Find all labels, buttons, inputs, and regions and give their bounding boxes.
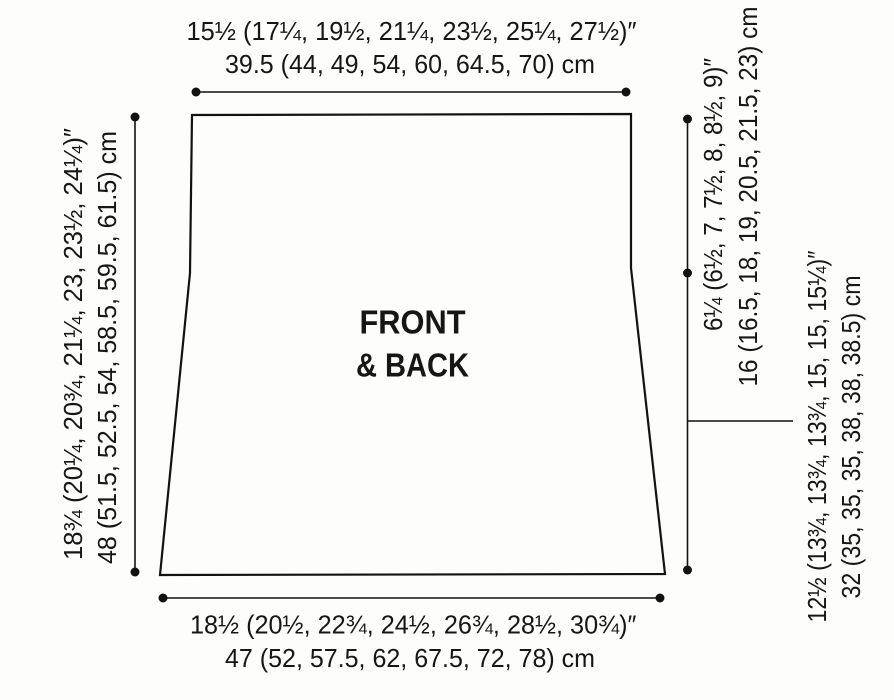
svg-text:6¼ (6½, 7, 7½, 8, 8½, 9)″: 6¼ (6½, 7, 7½, 8, 8½, 9)″ (698, 58, 728, 331)
svg-text:16 (16.5, 18, 19, 20.5, 21.5,: 16 (16.5, 18, 19, 20.5, 21.5, 23) cm (733, 7, 763, 387)
svg-text:15½ (17¼, 19½, 21¼, 23½, 25¼,: 15½ (17¼, 19½, 21¼, 23½, 25¼, 27½)″ (187, 16, 637, 46)
svg-text:39.5 (44, 49, 54, 60, 64.5, 70: 39.5 (44, 49, 54, 60, 64.5, 70) cm (225, 49, 595, 79)
svg-text:18½ (20½, 22¾, 24½, 26¾, 28½,: 18½ (20½, 22¾, 24½, 26¾, 28½, 30¾)″ (190, 610, 637, 640)
svg-text:32 (35, 35, 35, 38, 38, 38.5): 32 (35, 35, 35, 38, 38, 38.5) cm (836, 276, 866, 599)
svg-text:& BACK: & BACK (356, 347, 469, 384)
svg-text:12½ (13¾, 13¾, 13¾, 15, 15, 15: 12½ (13¾, 13¾, 13¾, 15, 15, 15¼)″ (802, 251, 832, 623)
svg-text:47 (52, 57.5, 62, 67.5, 72, 78: 47 (52, 57.5, 62, 67.5, 72, 78) cm (225, 643, 595, 673)
svg-text:FRONT: FRONT (360, 304, 466, 341)
svg-text:18¾ (20¼, 20¾, 21¼, 23, 23½, 2: 18¾ (20¼, 20¾, 21¼, 23, 23½, 24¼)″ (58, 128, 88, 560)
svg-text:48 (51.5, 52.5, 54, 58.5, 59.5: 48 (51.5, 52.5, 54, 58.5, 59.5, 61.5) cm (92, 131, 122, 564)
